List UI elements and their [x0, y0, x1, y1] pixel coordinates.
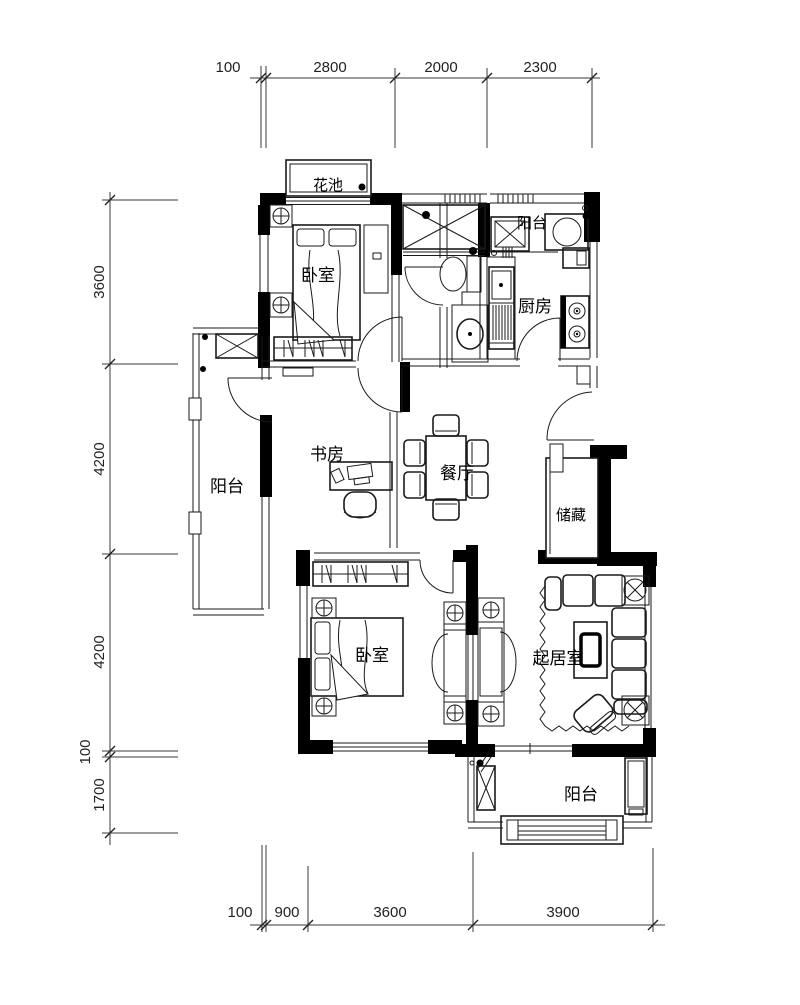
storage-room: [546, 444, 598, 558]
wardrobe-symbol-bedroom-top: [274, 337, 352, 376]
dim-left-4200b: 4200: [91, 635, 108, 668]
balcony-rail: [501, 816, 623, 844]
dim-top-2300: 2300: [523, 59, 556, 76]
label-bedroom-bottom: 卧室: [355, 646, 389, 665]
floor-plan-drawing: 100 2800 2000 2300 3600 4200 4200 100 17…: [0, 0, 800, 1005]
dim-bottom-900: 900: [274, 904, 299, 921]
bedroom-bottom-door-arc: [420, 560, 453, 593]
wardrobe-symbol-bedroom-bottom: [313, 562, 408, 586]
entry-door-arc: [547, 392, 594, 440]
label-storage: 储藏: [556, 507, 586, 524]
dim-left-1700: 1700: [91, 778, 108, 811]
washbasin-symbol: [452, 305, 488, 362]
label-study: 书房: [310, 445, 344, 464]
dim-left-100: 100: [77, 739, 94, 764]
dim-left-3600: 3600: [91, 265, 108, 298]
label-kitchen: 厨房: [518, 297, 552, 316]
dim-top-2000: 2000: [424, 59, 457, 76]
label-balcony-bottom: 阳台: [564, 785, 598, 804]
kitchen-door-arc: [517, 318, 560, 361]
hall-cabinet-right: [478, 598, 516, 726]
dimension-bottom: 100 900 3600 3900: [227, 845, 665, 932]
label-balcony-left: 阳台: [210, 477, 244, 496]
label-flower-bed: 花池: [313, 177, 343, 194]
sofa-symbol: [545, 575, 647, 714]
nightstand-symbol: [270, 205, 292, 317]
floor-plan-page: 100 2800 2000 2300 3600 4200 4200 100 17…: [0, 0, 800, 1005]
dim-top-2800: 2800: [313, 59, 346, 76]
label-bedroom-top: 卧室: [301, 266, 335, 285]
study-door-arc: [358, 368, 402, 412]
dim-bottom-3600: 3600: [373, 904, 406, 921]
label-balcony-top: 阳台: [517, 215, 547, 232]
kitchen-sink-symbol: [487, 257, 515, 359]
label-living-room: 起居室: [533, 649, 584, 668]
label-dining: 餐厅: [440, 464, 474, 483]
dimension-top: 100 2800 2000 2300: [215, 59, 600, 148]
cabinet-symbol-bedroom-top: [364, 225, 388, 293]
office-chair-symbol: [344, 492, 376, 518]
desk-symbol: [330, 462, 392, 490]
fridge-symbol: [563, 248, 589, 268]
dim-left-4200a: 4200: [91, 442, 108, 475]
washing-machine-symbol: [545, 206, 590, 251]
dim-bottom-3900: 3900: [546, 904, 579, 921]
bathroom-door-arc: [405, 267, 443, 305]
dim-bottom-100: 100: [227, 904, 252, 921]
hall-cabinet-left: [432, 602, 466, 724]
dim-top-100: 100: [215, 59, 240, 76]
armchair-symbol: [571, 692, 619, 739]
bedroom-top-door-arc: [358, 317, 402, 361]
balcony-left-cabinet-symbol: [200, 334, 258, 372]
dimension-left: 3600 4200 4200 100 1700: [77, 192, 178, 845]
balcony-bottom-cabinet: [470, 758, 647, 815]
stove-symbol: [561, 296, 589, 348]
column-dot: [422, 211, 430, 219]
